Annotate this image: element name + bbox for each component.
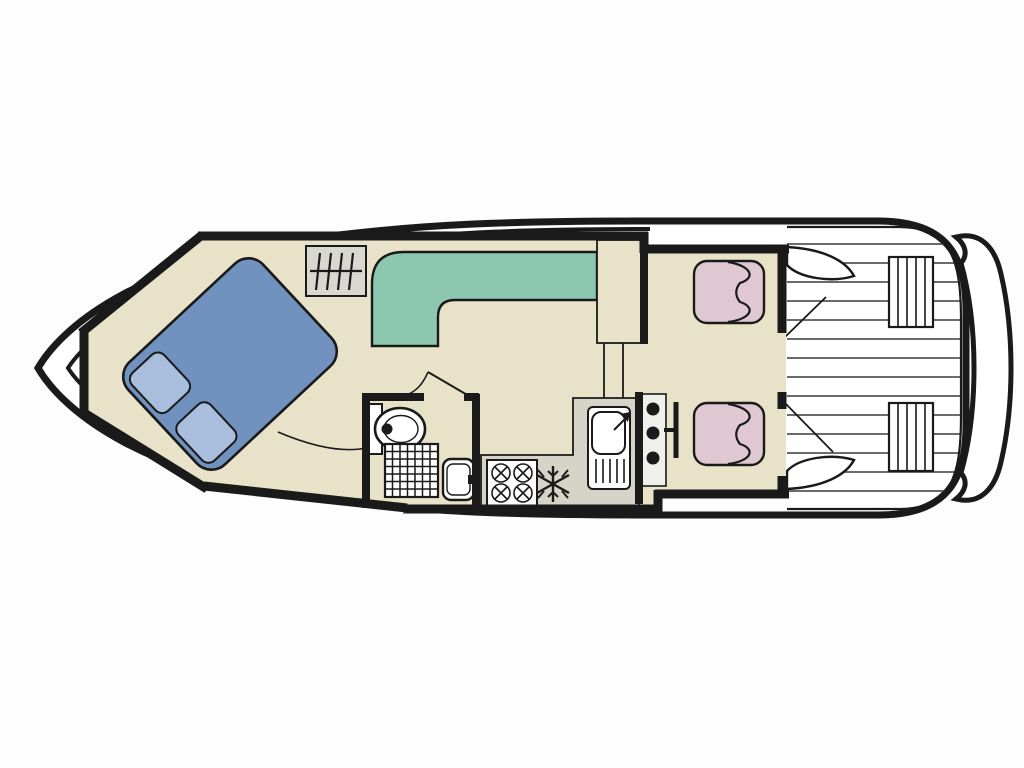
plan-root	[38, 221, 1011, 515]
saloon-cabinet	[597, 240, 641, 343]
console-knobs	[647, 403, 660, 465]
boat-floorplan-canvas	[0, 0, 1024, 768]
companionway-steps	[306, 246, 366, 296]
bench-seat	[889, 257, 933, 327]
toilet-flush-dot	[382, 424, 393, 435]
deck-bench-top	[889, 257, 933, 327]
helm-seat-rear	[694, 403, 764, 465]
helm-seat-front	[694, 261, 764, 323]
seat-cushion	[694, 261, 764, 323]
seat-cushion	[694, 403, 764, 465]
bench-seat	[889, 403, 933, 471]
floorplan-svg	[0, 0, 1024, 768]
deck-bench-bottom	[889, 403, 933, 471]
